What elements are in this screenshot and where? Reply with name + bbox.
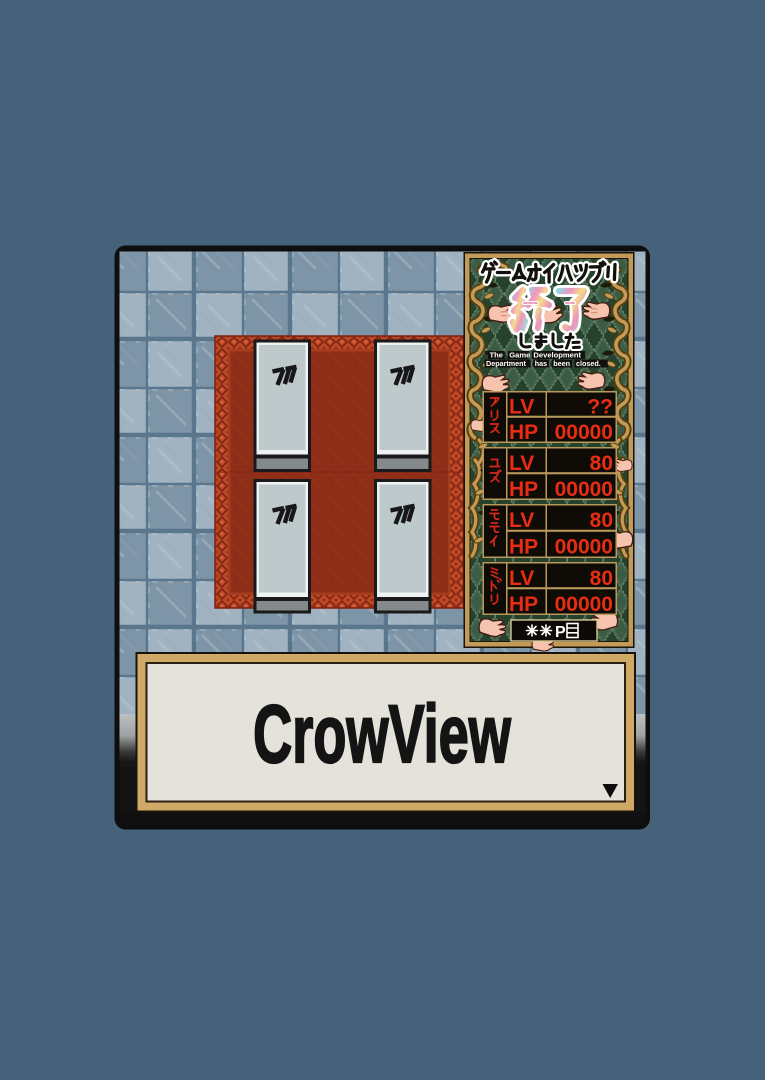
svg-text:00000: 00000 <box>555 593 613 616</box>
svg-text:HP: HP <box>509 536 538 559</box>
svg-text:80: 80 <box>590 567 613 590</box>
svg-text:Department: Department <box>486 359 527 368</box>
svg-text:closed.: closed. <box>576 359 601 368</box>
svg-text:??: ?? <box>587 396 613 419</box>
svg-text:HP: HP <box>509 421 538 444</box>
svg-text:P: P <box>555 624 566 641</box>
svg-text:has: has <box>535 359 547 368</box>
svg-text:00000: 00000 <box>555 421 613 444</box>
svg-text:been: been <box>553 359 570 368</box>
svg-text:HP: HP <box>509 478 538 501</box>
svg-text:LV: LV <box>509 509 534 532</box>
svg-text:00000: 00000 <box>555 536 613 559</box>
svg-text:80: 80 <box>590 452 613 475</box>
svg-text:LV: LV <box>509 567 534 590</box>
svg-text:LV: LV <box>509 452 534 475</box>
svg-text:00000: 00000 <box>555 478 613 501</box>
svg-text:80: 80 <box>590 509 613 532</box>
svg-text:CrowView: CrowView <box>253 688 511 780</box>
svg-text:LV: LV <box>509 396 534 419</box>
svg-text:HP: HP <box>509 593 538 616</box>
